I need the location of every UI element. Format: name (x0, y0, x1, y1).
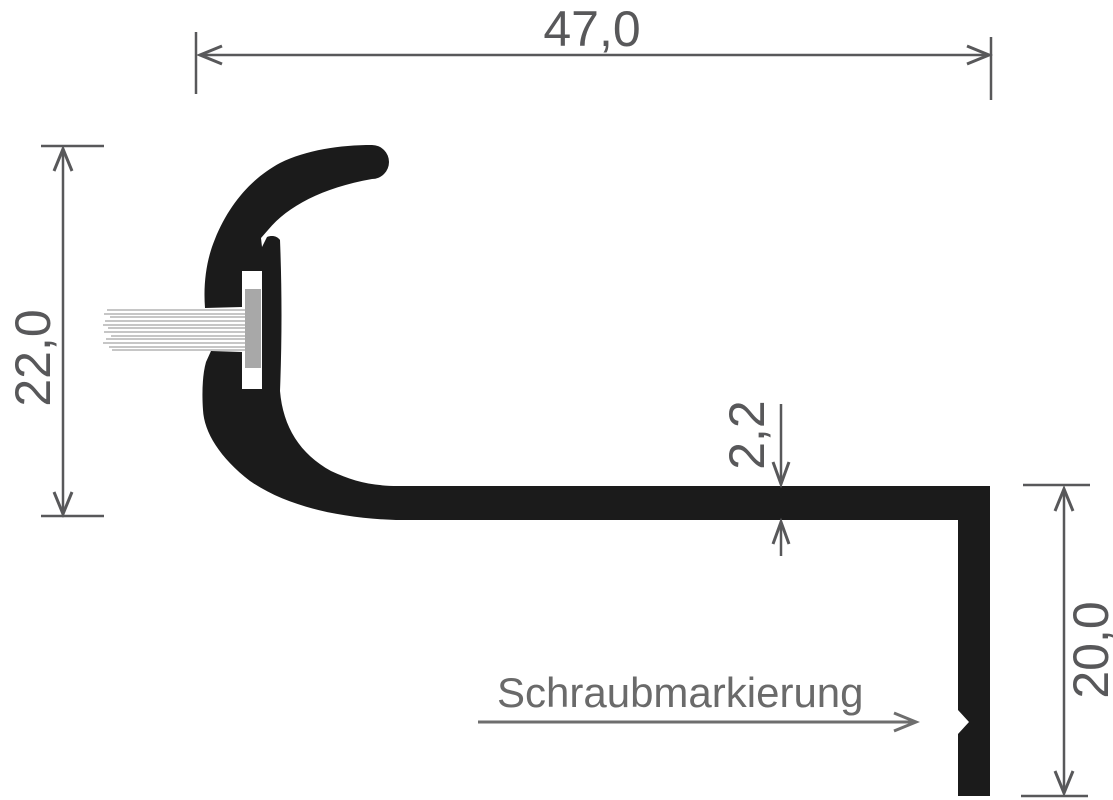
dimension-top-width-label: 47,0 (543, 1, 640, 57)
dimension-thickness-label: 2,2 (719, 400, 775, 470)
technical-drawing-canvas: 47,0 22,0 2,2 20,0 (0, 0, 1113, 800)
dimension-right-drop-label: 20,0 (1063, 601, 1113, 698)
screw-marking-annotation: Schraubmarkierung (478, 669, 916, 731)
brush-holder (245, 289, 261, 368)
dimension-right-drop: 20,0 (1021, 485, 1113, 796)
profile-drawing: 47,0 22,0 2,2 20,0 (0, 0, 1113, 800)
screw-marking-label: Schraubmarkierung (497, 669, 864, 716)
dimension-top-width: 47,0 (196, 1, 991, 100)
dimension-left-height-label: 22,0 (5, 309, 61, 406)
brush-bristles-lines (103, 310, 246, 350)
dimension-tread-thickness: 2,2 (719, 400, 789, 556)
dimension-left-height: 22,0 (5, 146, 104, 516)
